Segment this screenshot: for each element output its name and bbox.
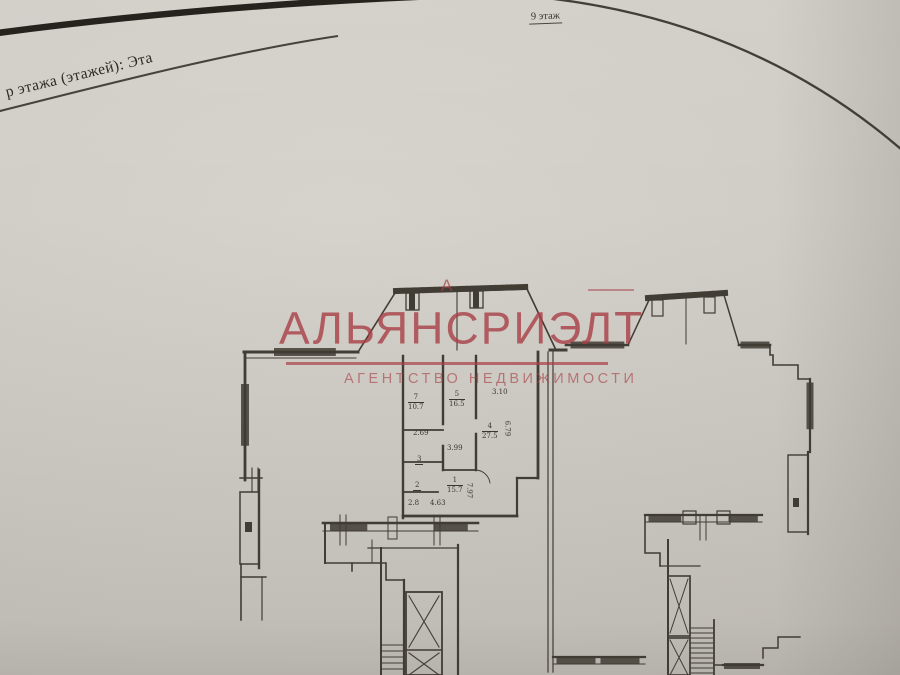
room-number: 2 (413, 482, 421, 491)
room-area: 16.5 (449, 400, 465, 408)
area-label: 2.69 (413, 430, 429, 437)
area-label: 2.8 (408, 500, 419, 507)
dimension-label: 7.97 (465, 483, 472, 499)
room-area: 15.7 (447, 486, 463, 494)
watermark-underline (286, 362, 608, 365)
room-label: 5 16.5 (449, 391, 465, 408)
room-number: 7 (408, 394, 424, 403)
dimension-label: 3.10 (492, 389, 508, 396)
room-label: 3 (415, 456, 423, 465)
room-label: 2 (413, 482, 421, 491)
room-label: 1 15.7 (447, 477, 463, 494)
watermark-subtitle: АГЕНТСТВО НЕДВИЖИМОСТИ (344, 371, 637, 387)
room-label: 4 27.5 (482, 423, 498, 440)
document-photo: р этажа (этажей): Эта 9 этаж 7 10.7 5 16… (0, 0, 900, 675)
watermark-stray-letter: А (441, 276, 452, 296)
area-label: 4.63 (430, 500, 446, 507)
watermark-dash (588, 289, 634, 291)
watermark-title: АЛЬЯНСРИЭЛТ (279, 302, 644, 355)
room-number: 4 (482, 423, 498, 432)
room-area: 10.7 (408, 403, 424, 411)
room-number: 3 (415, 456, 423, 465)
room-area: 27.5 (482, 432, 498, 440)
floor-number-note: 9 этаж (529, 10, 562, 24)
room-number: 1 (447, 477, 463, 486)
area-label: 3.99 (447, 445, 463, 452)
room-number: 5 (449, 391, 465, 400)
room-label: 7 10.7 (408, 394, 424, 411)
dimension-label: 6.79 (503, 421, 510, 437)
